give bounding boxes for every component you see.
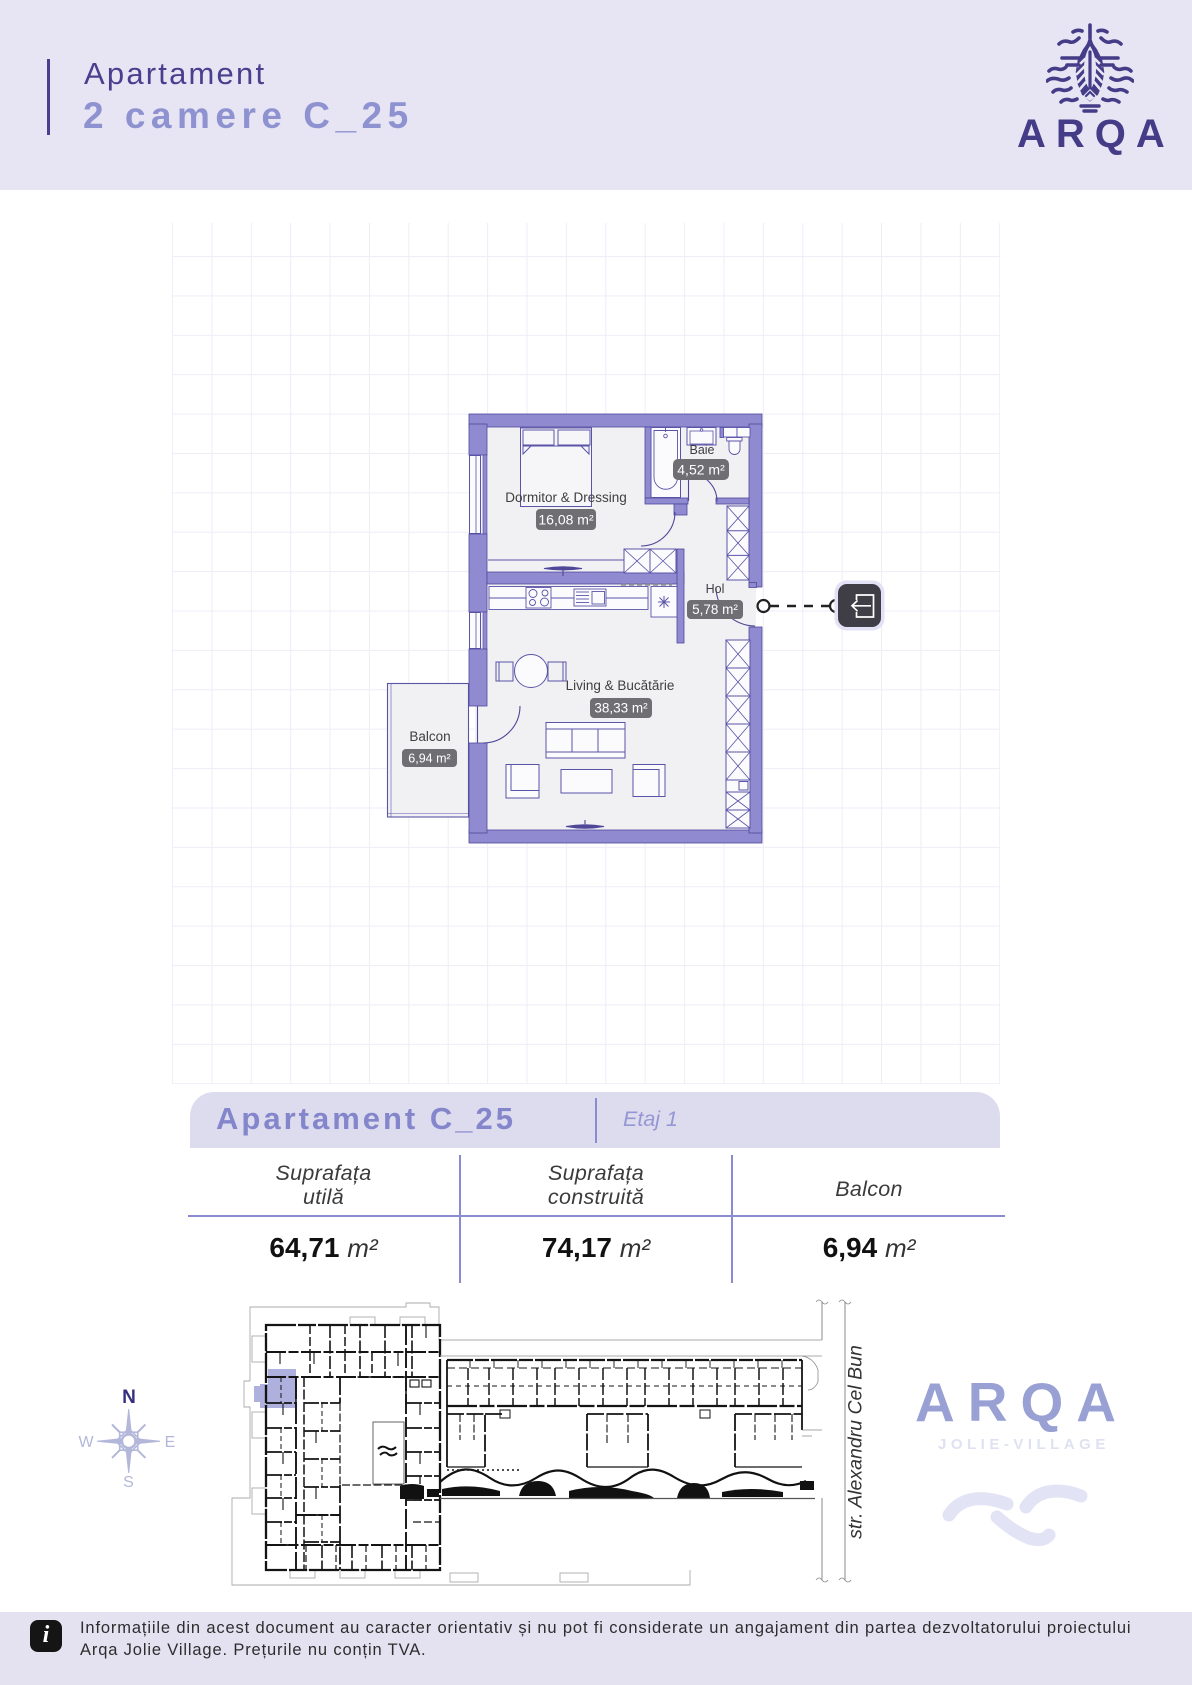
svg-text:16,08 m²: 16,08 m²: [538, 512, 594, 528]
svg-text:S: S: [123, 1474, 134, 1491]
svg-text:38,33 m²: 38,33 m²: [594, 701, 648, 716]
svg-text:Dormitor & Dressing: Dormitor & Dressing: [505, 490, 627, 505]
svg-text:Baie: Baie: [689, 443, 714, 457]
svg-text:Balcon: Balcon: [409, 729, 450, 744]
svg-text:Hol: Hol: [706, 582, 725, 596]
svg-text:W: W: [78, 1434, 94, 1451]
svg-text:4,52 m²: 4,52 m²: [677, 462, 725, 478]
svg-text:Living & Bucătărie: Living & Bucătărie: [566, 678, 675, 693]
svg-text:E: E: [165, 1434, 176, 1451]
svg-text:str. Alexandru Cel Bun: str. Alexandru Cel Bun: [845, 1345, 867, 1539]
svg-text:6,94 m²: 6,94 m²: [408, 752, 450, 766]
svg-text:N: N: [122, 1387, 136, 1408]
svg-text:5,78 m²: 5,78 m²: [692, 602, 738, 617]
